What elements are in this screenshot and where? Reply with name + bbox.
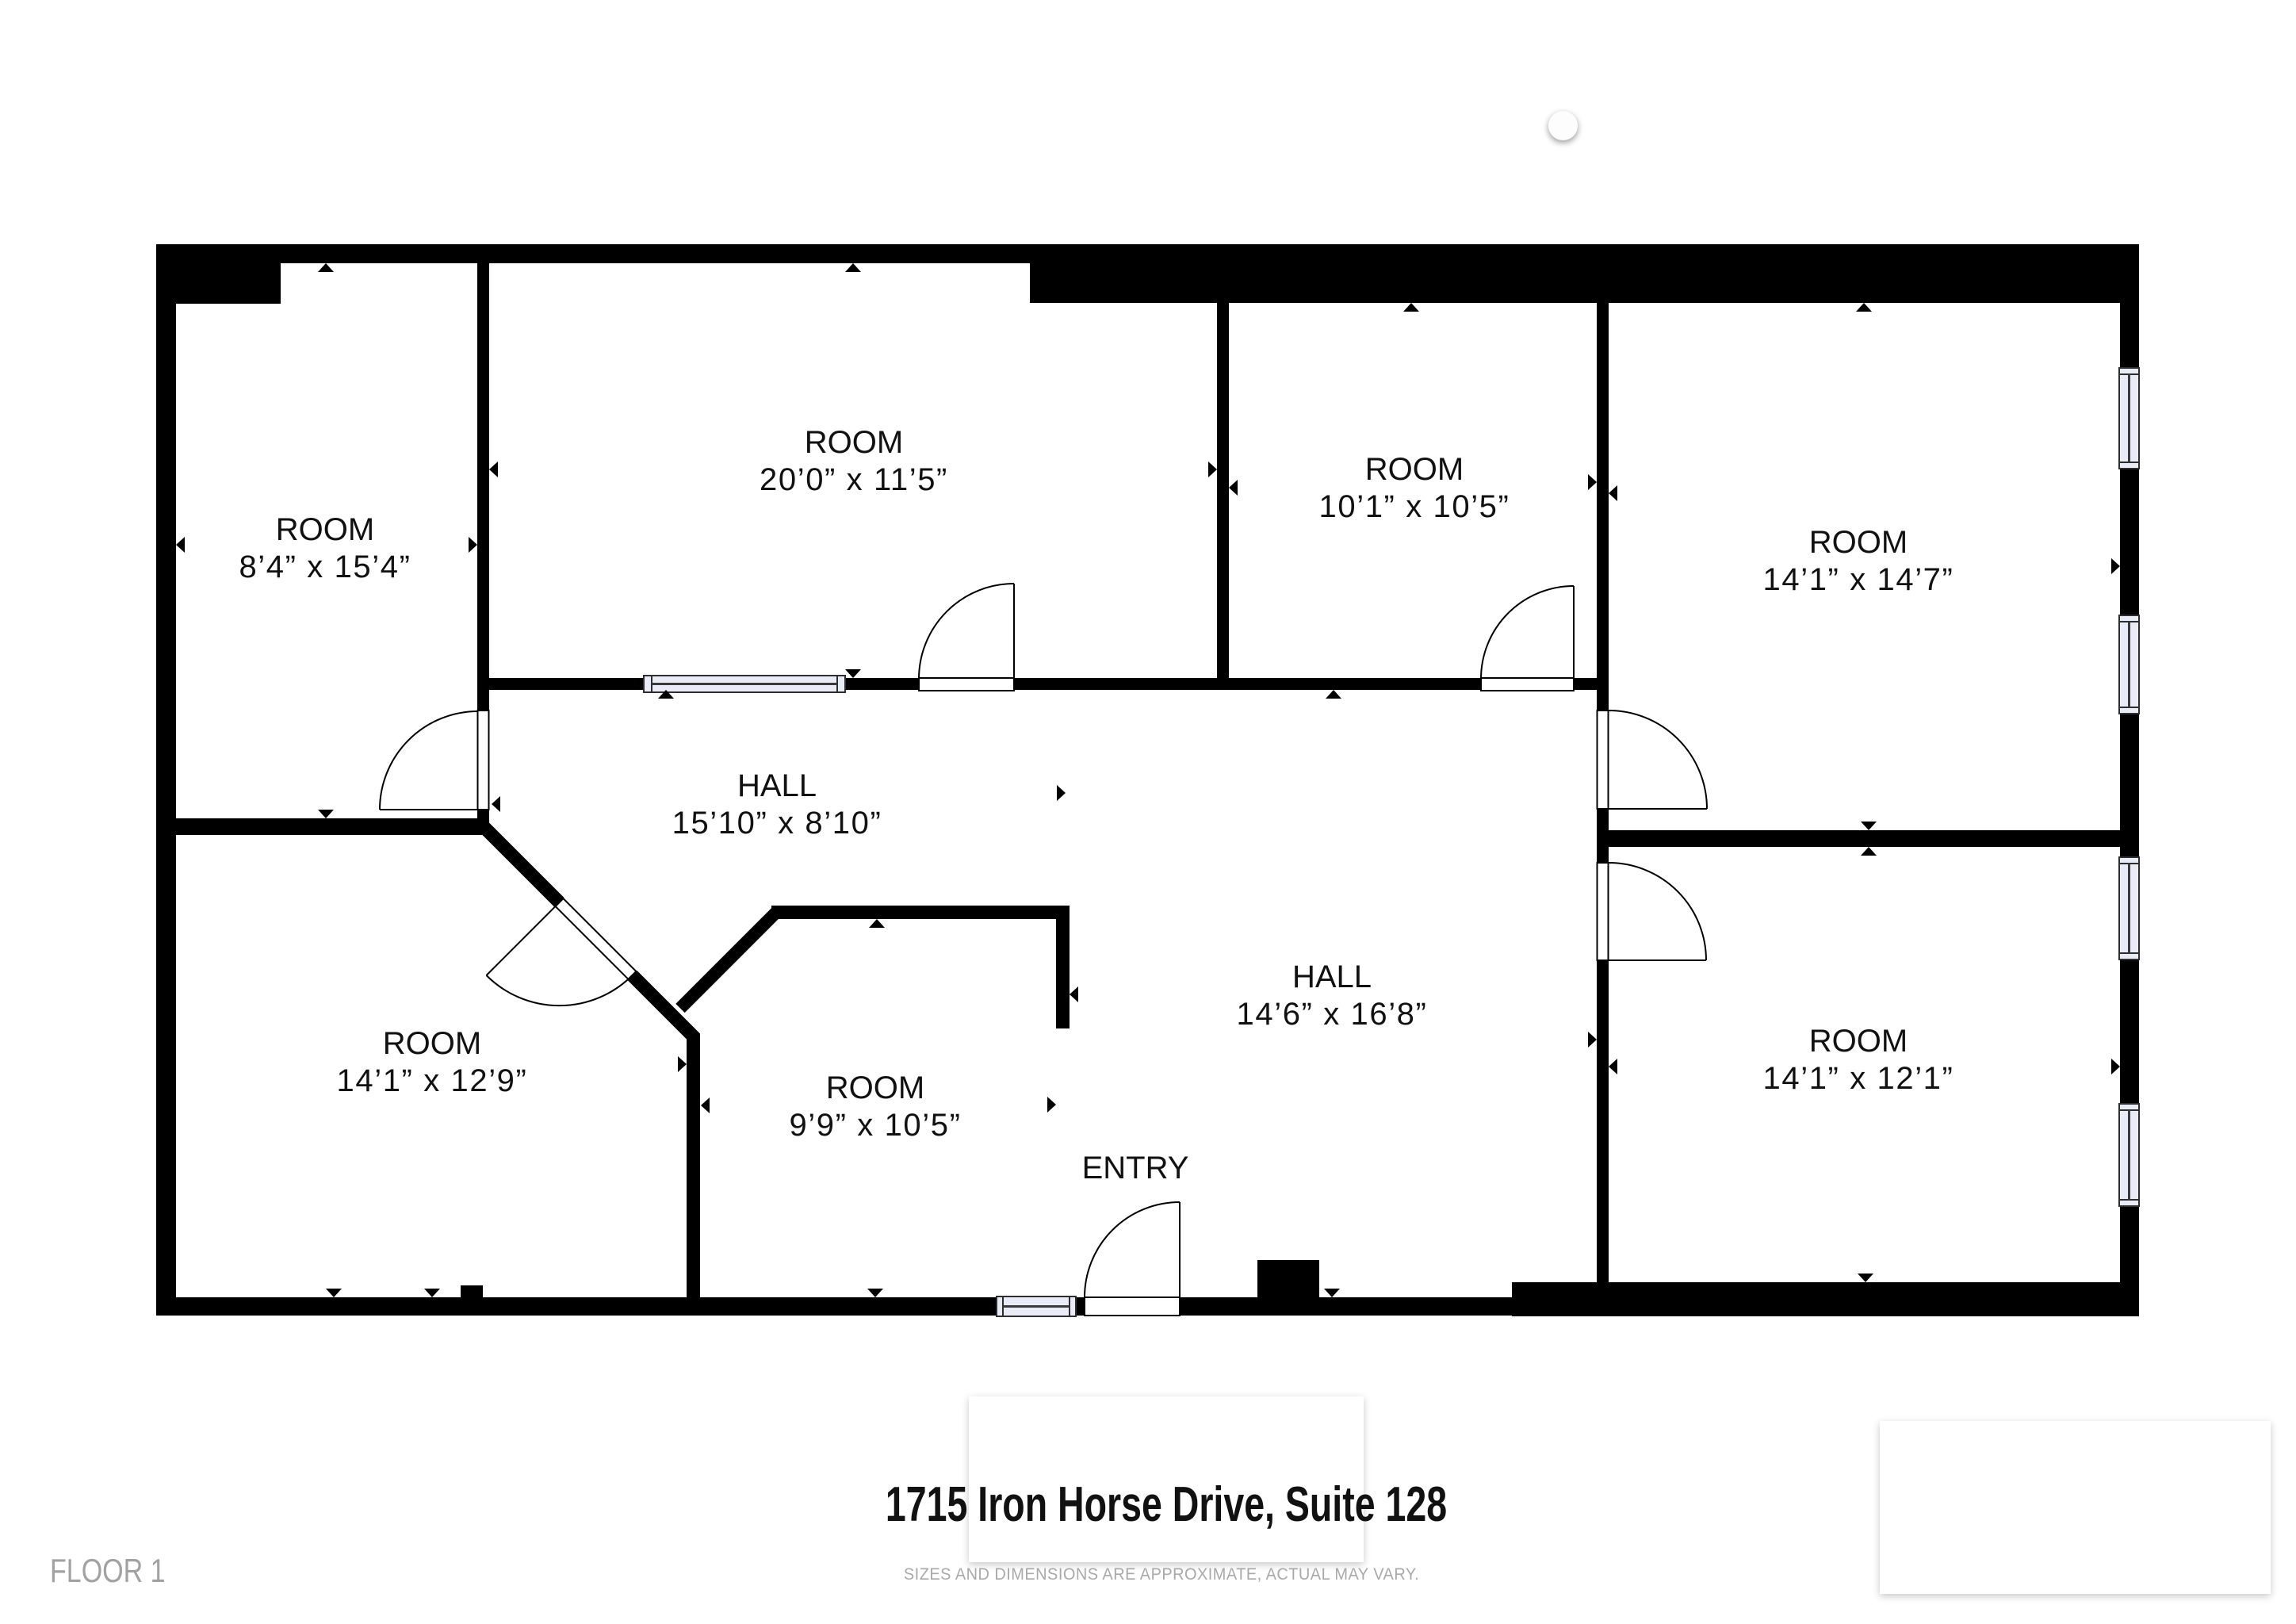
svg-text:14’1” x 12’1”: 14’1” x 12’1” (1763, 1061, 1954, 1096)
svg-text:10’1” x 10’5”: 10’1” x 10’5” (1319, 489, 1510, 524)
svg-text:15’10” x 8’10”: 15’10” x 8’10” (672, 806, 882, 841)
svg-text:ENTRY: ENTRY (1082, 1151, 1189, 1185)
svg-text:14’1” x 14’7”: 14’1” x 14’7” (1763, 562, 1954, 597)
svg-text:14’1” x 12’9”: 14’1” x 12’9” (337, 1063, 528, 1098)
svg-text:ROOM: ROOM (276, 512, 374, 547)
svg-text:ROOM: ROOM (826, 1071, 924, 1105)
svg-text:ROOM: ROOM (1365, 452, 1464, 487)
svg-text:20’0” x 11’5”: 20’0” x 11’5” (760, 462, 948, 497)
svg-text:ROOM: ROOM (1809, 525, 1908, 560)
svg-text:HALL: HALL (737, 768, 817, 803)
svg-text:ROOM: ROOM (1809, 1024, 1908, 1059)
svg-text:8’4” x 15’4”: 8’4” x 15’4” (239, 550, 411, 584)
svg-text:9’9” x 10’5”: 9’9” x 10’5” (789, 1108, 961, 1143)
svg-text:14’6” x 16’8”: 14’6” x 16’8” (1237, 997, 1428, 1032)
svg-text:HALL: HALL (1292, 959, 1372, 994)
svg-text:ROOM: ROOM (805, 425, 903, 460)
svg-text:ROOM: ROOM (383, 1026, 481, 1061)
